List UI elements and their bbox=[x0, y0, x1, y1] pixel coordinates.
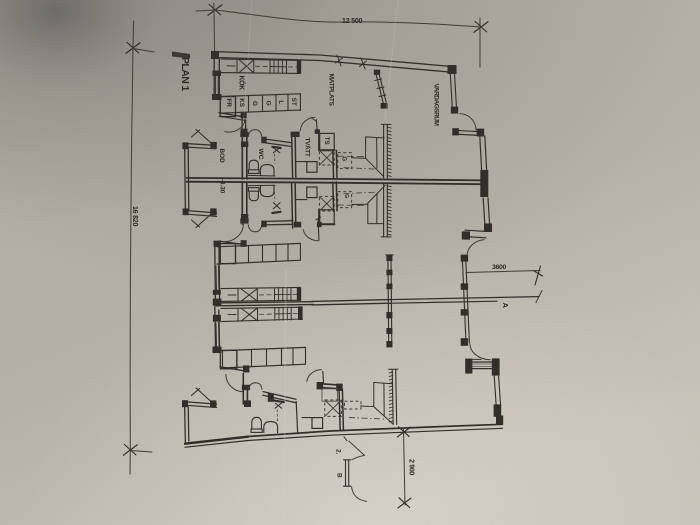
svg-text:A: A bbox=[501, 303, 510, 309]
svg-text:TS: TS bbox=[323, 137, 330, 146]
svg-text:MATPLATS: MATPLATS bbox=[328, 74, 335, 107]
svg-text:G: G bbox=[341, 157, 347, 162]
svg-text:G: G bbox=[264, 101, 271, 106]
svg-text:12 500: 12 500 bbox=[342, 18, 363, 25]
svg-text:G: G bbox=[343, 194, 349, 198]
svg-text:2.: 2. bbox=[335, 449, 342, 455]
svg-text:L: L bbox=[277, 100, 284, 104]
svg-text:WC: WC bbox=[257, 149, 264, 160]
svg-text:16 820: 16 820 bbox=[131, 206, 138, 227]
svg-text:KS: KS bbox=[238, 98, 245, 108]
svg-text:BOD: BOD bbox=[218, 149, 225, 164]
svg-text:2 900: 2 900 bbox=[408, 459, 415, 475]
svg-text:G: G bbox=[251, 101, 258, 106]
svg-text:-8.30: -8.30 bbox=[219, 179, 226, 194]
svg-text:TVÄTT: TVÄTT bbox=[304, 138, 312, 157]
svg-text:PLAN 1: PLAN 1 bbox=[179, 57, 191, 92]
svg-text:ST: ST bbox=[290, 98, 297, 106]
svg-text:KÖK: KÖK bbox=[238, 76, 247, 91]
svg-text:FR: FR bbox=[225, 99, 232, 108]
svg-text:B: B bbox=[336, 473, 343, 478]
svg-text:VARDAGSRUM: VARDAGSRUM bbox=[432, 84, 439, 127]
svg-text:3600: 3600 bbox=[492, 264, 506, 271]
